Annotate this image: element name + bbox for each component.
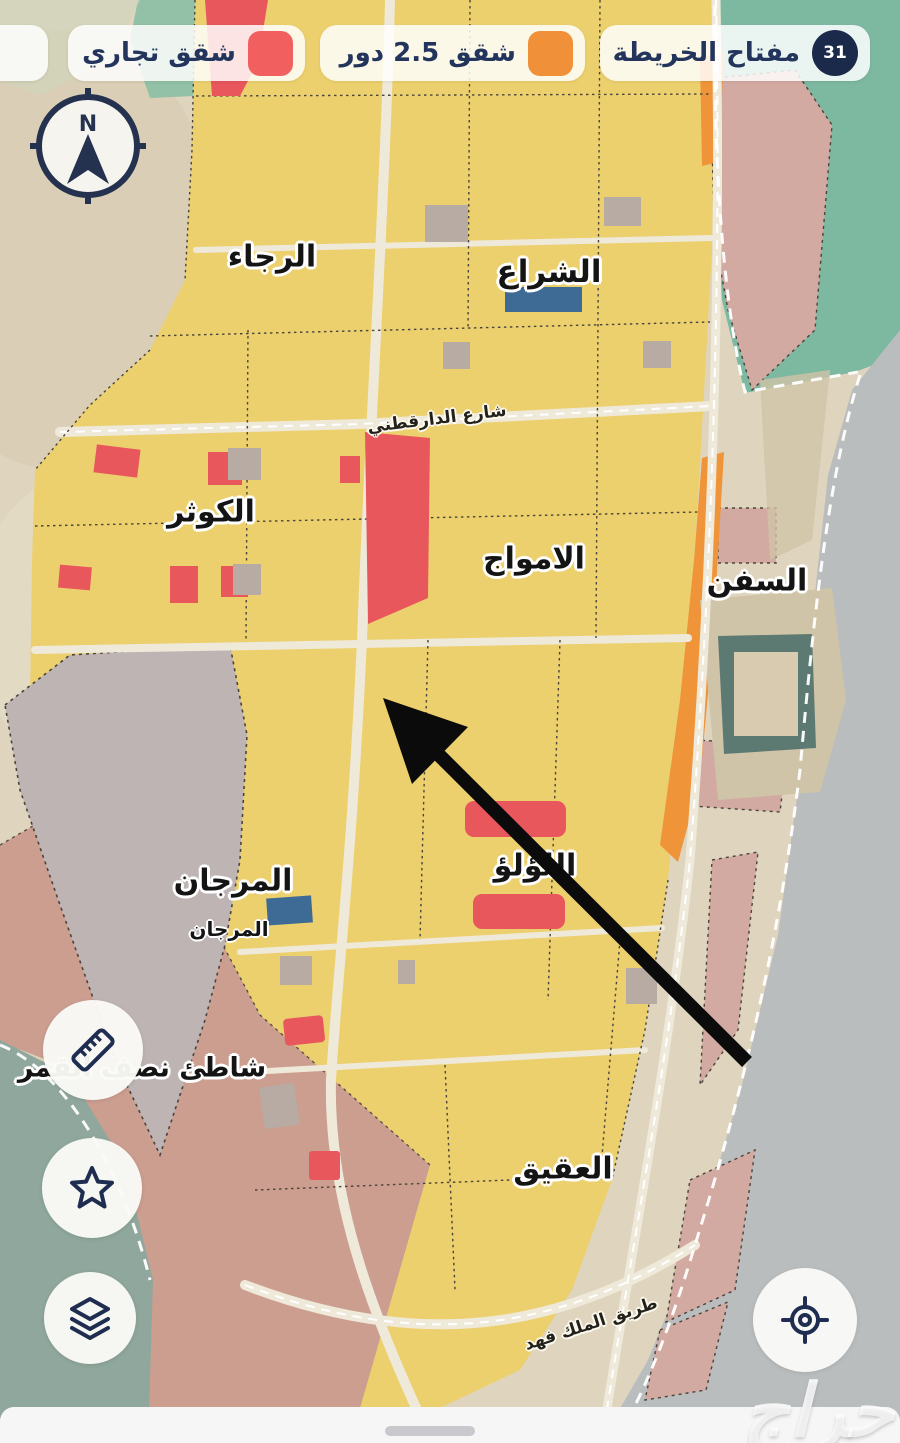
district-label-kawthar: الكوثر [167, 495, 255, 530]
compass-north-label: N [79, 112, 97, 137]
district-label-lulu: اللؤلؤ [494, 849, 577, 884]
district-label-sheraa: الشراع [497, 254, 602, 290]
ruler-icon [67, 1024, 119, 1076]
crosshair-icon [775, 1290, 835, 1350]
layers-icon [64, 1292, 116, 1344]
orange-swatch-icon [528, 31, 573, 76]
star-icon [64, 1160, 120, 1216]
district-label-amwaj: الامواج [483, 542, 585, 577]
compass-icon: N [28, 86, 148, 206]
legend-chip-map-key[interactable]: 31 مفتاح الخريطة [600, 25, 870, 81]
map-app-screen: الرجاء الشراع الكوثر الامواج السفن المرج… [0, 0, 900, 1443]
district-label-marjan-small: المرجان [189, 917, 268, 941]
home-indicator[interactable] [385, 1426, 475, 1436]
legend-count-badge: 31 [812, 30, 858, 76]
red-swatch-icon [248, 31, 293, 76]
legend-chip-label: شقق تجاري [82, 38, 236, 68]
legend-chip-25-floor-apartments[interactable]: شقق 2.5 دور [320, 25, 585, 81]
district-label-sufun: السفن [707, 564, 808, 599]
layers-button[interactable] [44, 1272, 136, 1364]
legend-chip-label: شقق 2.5 دور [340, 38, 516, 68]
legend-chip-partial[interactable] [0, 25, 48, 81]
locate-me-button[interactable] [753, 1268, 857, 1372]
district-label-aqiq: العقيق [513, 1152, 612, 1187]
district-label-rajaa: الرجاء [228, 240, 316, 275]
district-label-marjan: المرجان [174, 864, 293, 899]
haraj-watermark: حراج [743, 1369, 894, 1443]
map-canvas[interactable] [0, 0, 900, 1443]
compass[interactable]: N [28, 86, 148, 206]
ruler-button[interactable] [43, 1000, 143, 1100]
favorites-button[interactable] [42, 1138, 142, 1238]
legend-chip-commercial-apartments[interactable]: شقق تجاري [68, 25, 305, 81]
legend-chip-label: مفتاح الخريطة [613, 38, 800, 68]
